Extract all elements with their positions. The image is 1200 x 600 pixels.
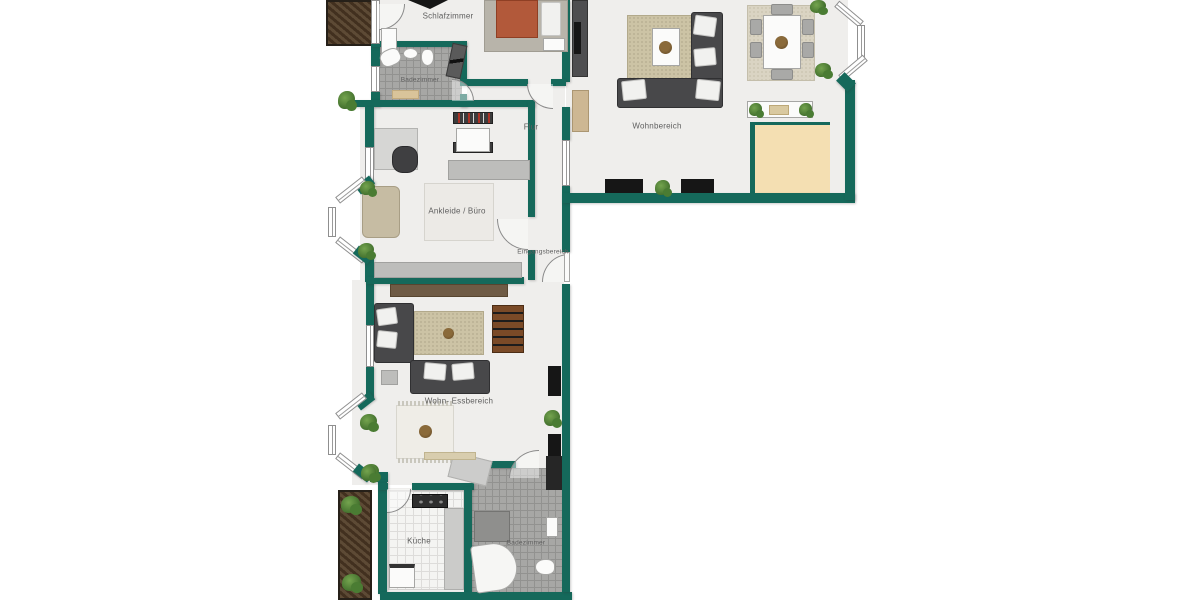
tv-unit xyxy=(548,366,561,396)
plant xyxy=(361,465,376,481)
wall xyxy=(528,100,535,217)
room-label-ankleide: Ankleide / Büro xyxy=(428,207,485,216)
wall-cabinet xyxy=(681,179,714,193)
dining-chair xyxy=(750,42,762,58)
plant xyxy=(341,496,360,513)
dining-chair xyxy=(802,42,814,58)
wall xyxy=(845,80,855,200)
sofa-pillow xyxy=(451,362,474,381)
plant xyxy=(358,243,374,258)
kitchen-counter xyxy=(444,508,464,590)
plant xyxy=(749,103,762,116)
wall xyxy=(378,480,387,594)
wood-cabinet xyxy=(572,90,589,132)
dining-chair xyxy=(802,19,814,35)
bay-window-pane xyxy=(328,207,336,237)
wall xyxy=(366,277,524,284)
tv-screen xyxy=(574,22,581,54)
bath-wardrobe xyxy=(546,456,562,490)
wall-cabinet xyxy=(605,179,643,193)
room-label-badezimmer-oben: Badezimmer xyxy=(401,77,439,84)
plant xyxy=(360,414,377,430)
window xyxy=(371,66,380,92)
dining-centerpiece xyxy=(775,36,788,49)
bath-sink-bottom xyxy=(546,517,558,537)
wall xyxy=(464,487,472,592)
ankleide-dresser xyxy=(456,128,490,152)
wall xyxy=(366,280,374,325)
plant xyxy=(544,410,560,426)
room-label-flur: Flur xyxy=(524,123,539,132)
terrace-area xyxy=(750,122,830,193)
wall xyxy=(365,107,374,147)
window xyxy=(366,325,374,367)
ankleide-counter xyxy=(448,160,530,180)
sofa-pillow xyxy=(376,307,398,327)
plant xyxy=(799,103,812,116)
wall-shelf-wood xyxy=(390,284,508,297)
sofa-pillow xyxy=(693,47,716,67)
wall xyxy=(562,284,570,592)
wall xyxy=(562,193,855,203)
hall-shelf xyxy=(453,112,493,124)
sofa-pillow xyxy=(621,79,647,101)
sofa-pillow xyxy=(376,330,398,349)
plant xyxy=(655,180,670,195)
entrance-door-leaf xyxy=(564,252,570,282)
wall xyxy=(380,592,572,600)
room-label-schlafzimmer: Schlafzimmer xyxy=(423,12,474,21)
shelf-strip xyxy=(424,452,476,460)
plant xyxy=(810,0,826,13)
room-label-eingangsbereich: Eingangsbereich xyxy=(517,249,568,256)
table-decor xyxy=(419,425,432,438)
wall xyxy=(460,79,528,86)
wall xyxy=(352,100,535,107)
toilet-bottom xyxy=(535,559,555,575)
bath-vanity xyxy=(474,511,510,542)
sofa-pillow xyxy=(695,79,721,101)
bay-window-pane xyxy=(328,425,336,455)
toilet-top xyxy=(421,49,434,66)
wall xyxy=(562,107,570,140)
wall xyxy=(551,79,566,86)
dining-chair xyxy=(750,19,762,35)
bath-mat xyxy=(392,90,419,99)
sofa-pillow xyxy=(423,362,446,381)
office-chair xyxy=(392,146,418,173)
room-label-wohn-essbereich: Wohn- Essbereich xyxy=(425,397,493,406)
room-label-kueche: Küche xyxy=(407,537,431,546)
room-label-badezimmer-unten: Badezimmer xyxy=(507,540,545,547)
sofa-bottom xyxy=(410,360,490,394)
room-label-wohnbereich: Wohnbereich xyxy=(632,122,681,131)
plant xyxy=(338,91,355,109)
foosball-table xyxy=(492,305,524,353)
sofa-pillow xyxy=(693,15,718,38)
kitchen-sink xyxy=(389,564,415,588)
coffee-table-decor xyxy=(659,41,672,54)
dining-chair xyxy=(771,4,793,15)
bed-mattress xyxy=(496,0,538,38)
floor-plan-canvas: Schlafzimmer Badezimmer Flur Wohnbereich… xyxy=(0,0,1200,600)
wardrobe-row xyxy=(374,262,522,278)
plant xyxy=(342,574,361,591)
bathroom-sink-top xyxy=(403,48,418,59)
wall xyxy=(371,44,380,66)
nightstand xyxy=(543,38,565,51)
rug-decor xyxy=(443,328,454,339)
stove-counter xyxy=(412,494,448,508)
bed-pillows xyxy=(541,2,561,36)
plant xyxy=(360,181,375,195)
dining-chair xyxy=(771,69,793,80)
sideboard-box xyxy=(769,105,789,115)
side-table xyxy=(381,370,398,385)
plant xyxy=(815,63,831,77)
window xyxy=(562,140,570,186)
